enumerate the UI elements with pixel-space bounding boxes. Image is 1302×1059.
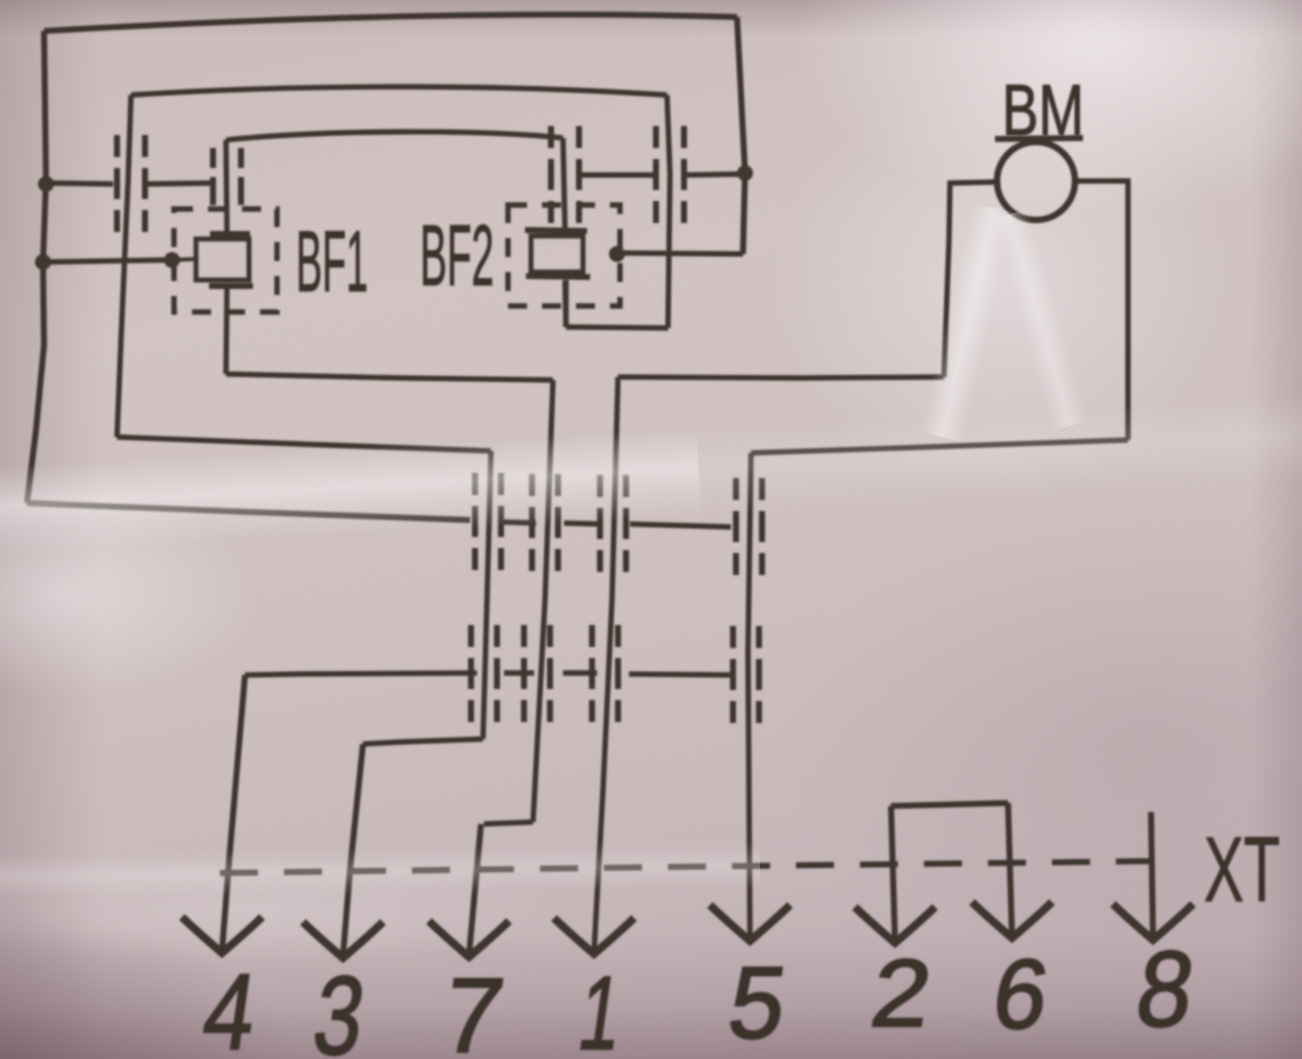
svg-text:XT: XT [1204, 819, 1280, 921]
svg-text:BF1: BF1 [296, 214, 368, 310]
svg-text:BM: BM [1002, 71, 1084, 151]
svg-text:BF2: BF2 [420, 208, 494, 304]
